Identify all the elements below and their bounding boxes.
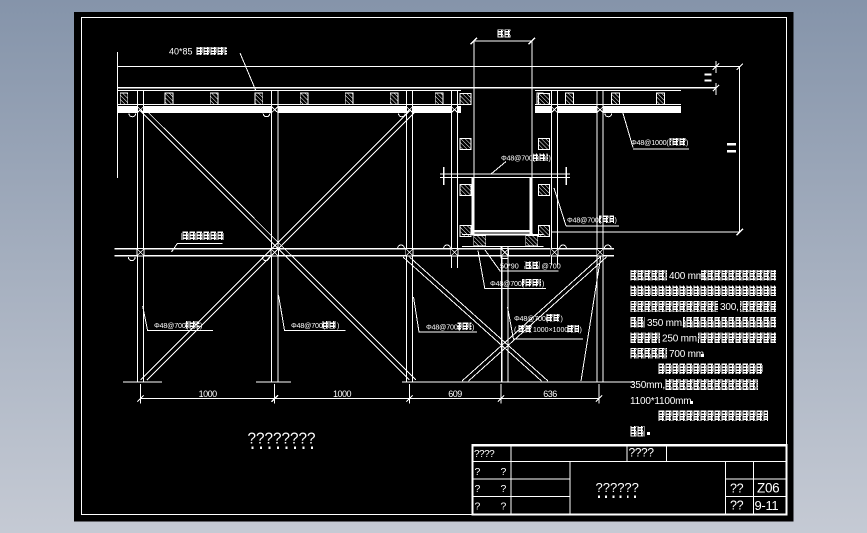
svg-text:350mm,: 350mm, xyxy=(630,380,665,391)
svg-text:400 mm: 400 mm xyxy=(669,271,704,282)
svg-text:700 mm: 700 mm xyxy=(669,349,704,360)
svg-text:636: 636 xyxy=(543,389,557,399)
svg-text:): ) xyxy=(472,323,474,332)
svg-text:1000: 1000 xyxy=(333,389,352,399)
svg-text:): ) xyxy=(549,154,551,163)
svg-text:): ) xyxy=(615,216,617,225)
svg-text:Φ48@700(: Φ48@700( xyxy=(501,154,536,163)
svg-text:????: ???? xyxy=(474,449,495,460)
svg-text:300,: 300, xyxy=(720,302,739,313)
svg-text:??????: ?????? xyxy=(596,480,639,495)
svg-text:Φ48@700(: Φ48@700( xyxy=(514,314,549,323)
svg-text:250 mm,: 250 mm, xyxy=(662,333,700,344)
svg-text:?: ? xyxy=(501,501,507,513)
svg-text:Φ48@1000(: Φ48@1000( xyxy=(631,138,669,147)
svg-text:40*85: 40*85 xyxy=(169,47,193,57)
svg-text:): ) xyxy=(580,325,582,334)
svg-text:??: ?? xyxy=(730,499,744,513)
svg-text:Φ48@700(: Φ48@700( xyxy=(567,216,602,225)
svg-text:?: ? xyxy=(475,501,481,513)
svg-text:609: 609 xyxy=(448,389,462,399)
svg-text:?: ? xyxy=(475,483,481,495)
svg-text:Φ48@700(: Φ48@700( xyxy=(291,321,326,330)
svg-text:Φ48@700(: Φ48@700( xyxy=(154,321,189,330)
svg-text:): ) xyxy=(686,138,688,147)
svg-text:): ) xyxy=(542,279,544,288)
svg-text:Φ48@700(: Φ48@700( xyxy=(426,323,461,332)
svg-text:): ) xyxy=(200,321,202,330)
svg-text:@700: @700 xyxy=(542,262,561,271)
svg-text:1100*1100mm: 1100*1100mm xyxy=(630,396,691,407)
svg-text:Φ48@700(: Φ48@700( xyxy=(490,279,525,288)
svg-text:1000×1000: 1000×1000 xyxy=(533,327,568,334)
svg-text:350 mm,: 350 mm, xyxy=(647,318,685,329)
svg-text:50*90: 50*90 xyxy=(500,262,519,271)
svg-text:): ) xyxy=(337,321,339,330)
svg-text:????????: ???????? xyxy=(248,431,316,448)
svg-text:): ) xyxy=(561,314,563,323)
svg-text:??: ?? xyxy=(730,482,744,496)
svg-text:9-11: 9-11 xyxy=(755,498,779,513)
svg-text:?: ? xyxy=(501,483,507,495)
svg-text:?: ? xyxy=(475,466,481,478)
svg-text:1000: 1000 xyxy=(199,389,218,399)
svg-text:????: ???? xyxy=(629,446,655,460)
svg-text:Z06: Z06 xyxy=(757,481,779,496)
svg-text:?: ? xyxy=(501,466,507,478)
